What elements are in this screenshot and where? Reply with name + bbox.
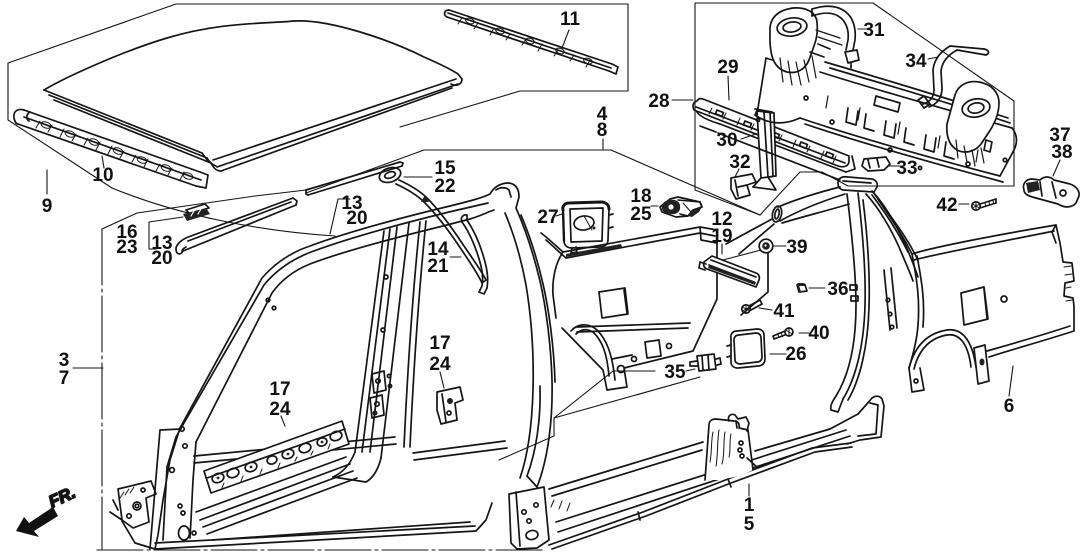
svg-text:19: 19 — [711, 226, 732, 247]
svg-text:23: 23 — [116, 237, 137, 258]
svg-text:9: 9 — [42, 196, 53, 217]
svg-text:22: 22 — [434, 176, 455, 197]
svg-text:41: 41 — [773, 301, 795, 322]
svg-text:32: 32 — [729, 152, 750, 173]
svg-text:20: 20 — [151, 248, 172, 269]
svg-text:35: 35 — [664, 362, 686, 383]
svg-text:34: 34 — [905, 51, 927, 72]
svg-text:FR.: FR. — [46, 483, 79, 512]
svg-text:7: 7 — [59, 368, 70, 389]
svg-text:40: 40 — [808, 323, 829, 344]
svg-text:21: 21 — [427, 256, 449, 277]
svg-text:17: 17 — [429, 333, 450, 354]
svg-text:25: 25 — [630, 204, 652, 225]
svg-text:17: 17 — [269, 379, 290, 400]
svg-text:1: 1 — [744, 495, 755, 516]
svg-text:26: 26 — [785, 344, 806, 365]
svg-text:28: 28 — [648, 91, 669, 112]
svg-text:31: 31 — [863, 20, 885, 41]
svg-text:39: 39 — [786, 237, 807, 258]
svg-text:33: 33 — [896, 158, 917, 179]
svg-text:24: 24 — [429, 354, 451, 375]
svg-text:30: 30 — [716, 130, 737, 151]
svg-text:8: 8 — [597, 120, 608, 141]
svg-text:29: 29 — [717, 57, 738, 78]
svg-text:27: 27 — [537, 207, 558, 228]
svg-text:5: 5 — [744, 514, 755, 535]
svg-text:6: 6 — [1004, 396, 1015, 417]
svg-text:20: 20 — [346, 208, 367, 229]
svg-text:11: 11 — [560, 9, 581, 30]
svg-text:36: 36 — [827, 279, 848, 300]
svg-text:42: 42 — [936, 195, 957, 216]
svg-text:10: 10 — [92, 165, 113, 186]
svg-text:38: 38 — [1051, 142, 1072, 163]
svg-text:24: 24 — [269, 399, 291, 420]
